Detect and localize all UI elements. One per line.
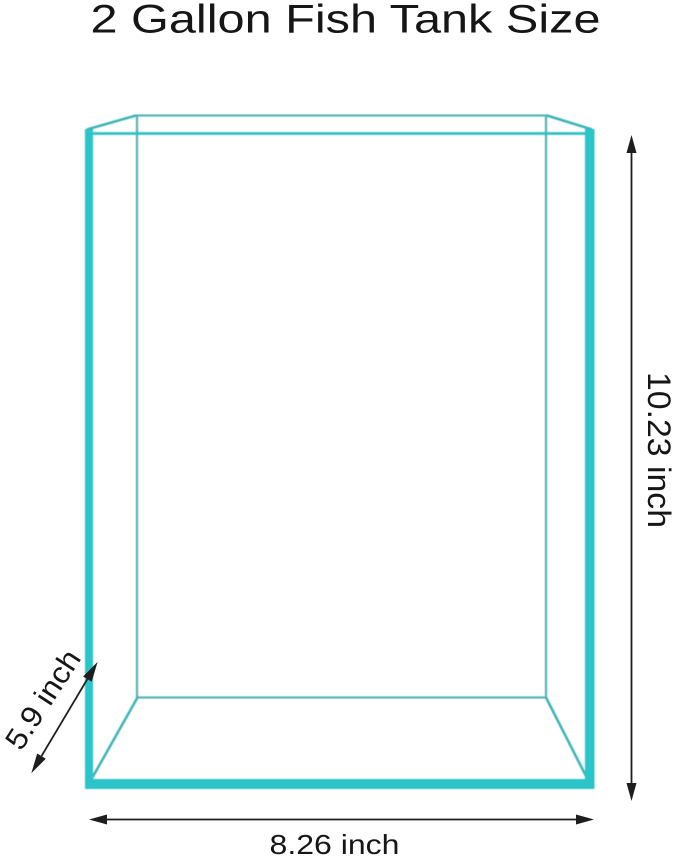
svg-text:8.26 inch: 8.26 inch [270, 829, 400, 858]
svg-text:2 Gallon Fish Tank Size: 2 Gallon Fish Tank Size [91, 0, 601, 42]
svg-text:10.23 inch: 10.23 inch [641, 372, 677, 528]
